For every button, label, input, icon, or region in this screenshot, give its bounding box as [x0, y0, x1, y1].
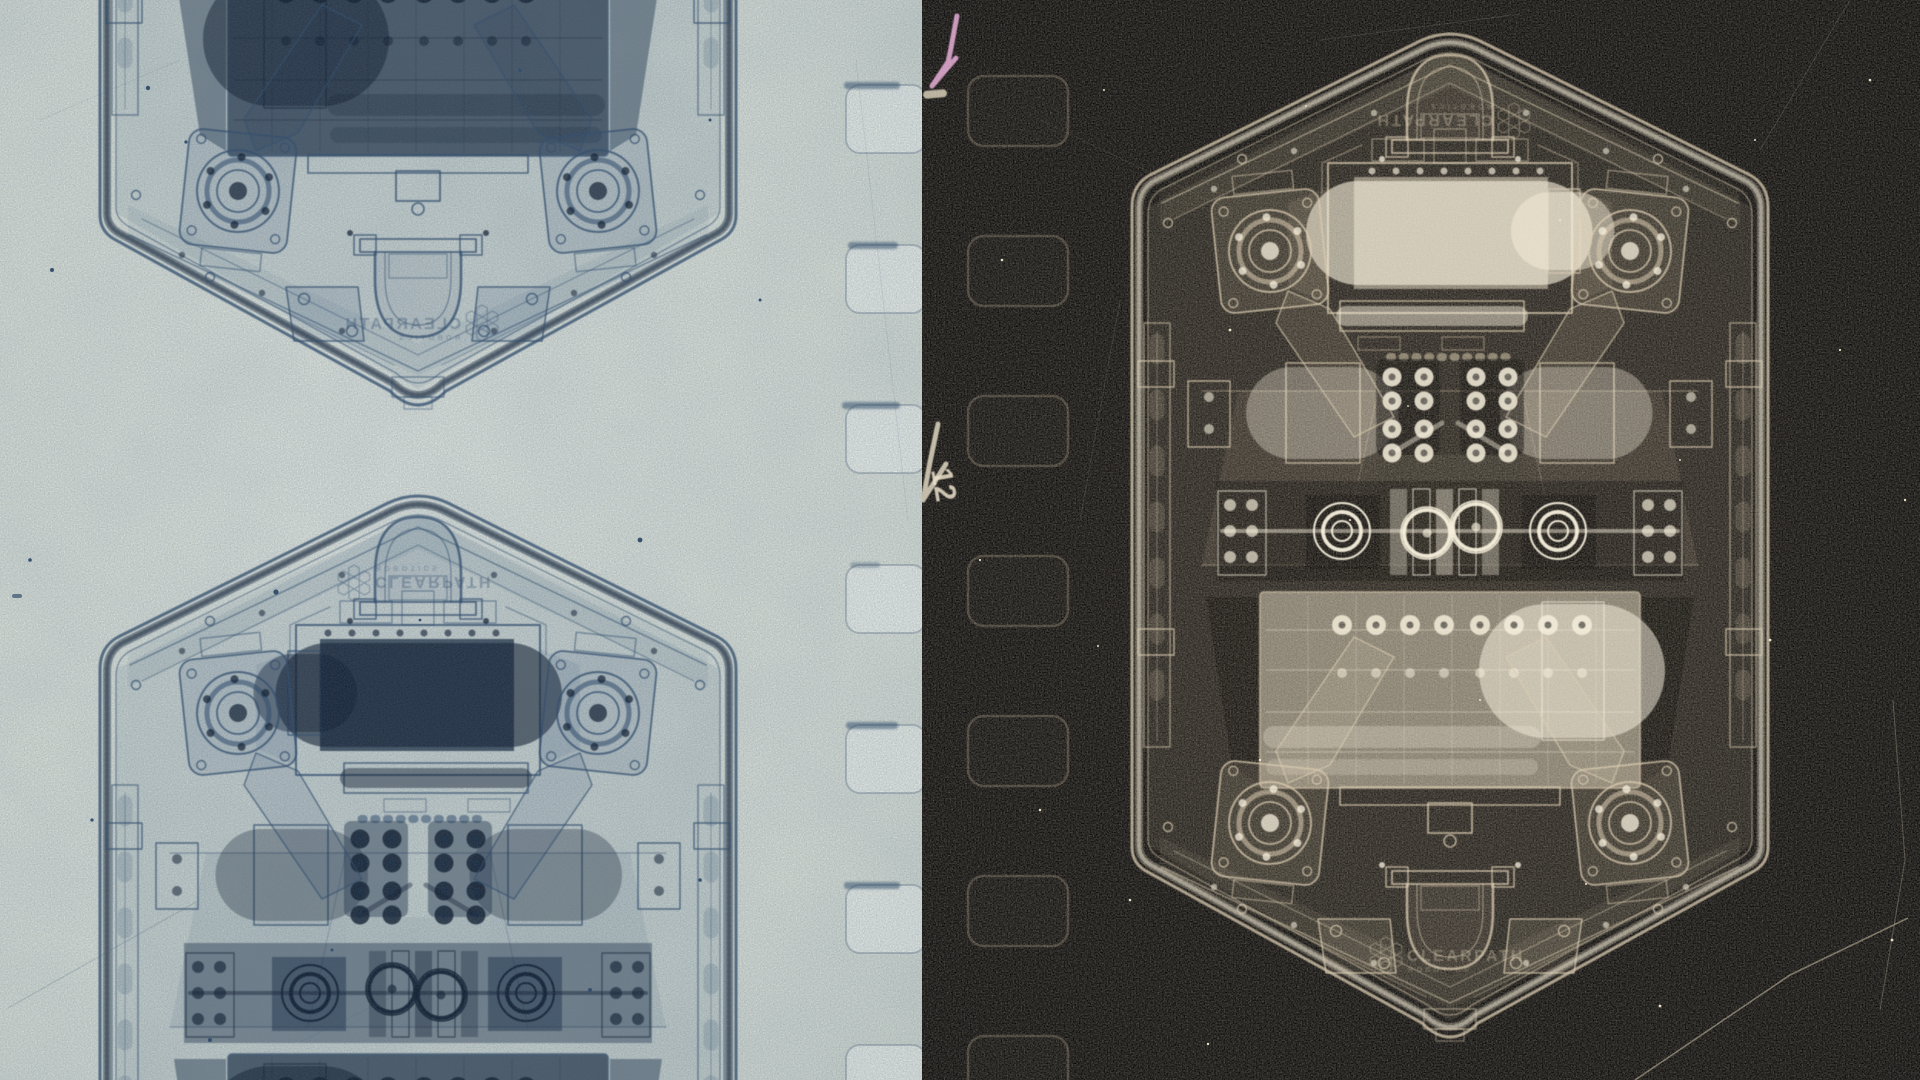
negative-film-grain [0, 0, 922, 1080]
film-negative-panel [0, 0, 926, 1080]
scan-canvas: CLEARPATH ROBOTICS [0, 0, 1920, 1080]
positive-film-grain [922, 0, 1920, 1080]
film-positive-panel: 12 [922, 0, 1920, 1080]
film-scan-composite: CLEARPATH ROBOTICS [0, 0, 1920, 1080]
